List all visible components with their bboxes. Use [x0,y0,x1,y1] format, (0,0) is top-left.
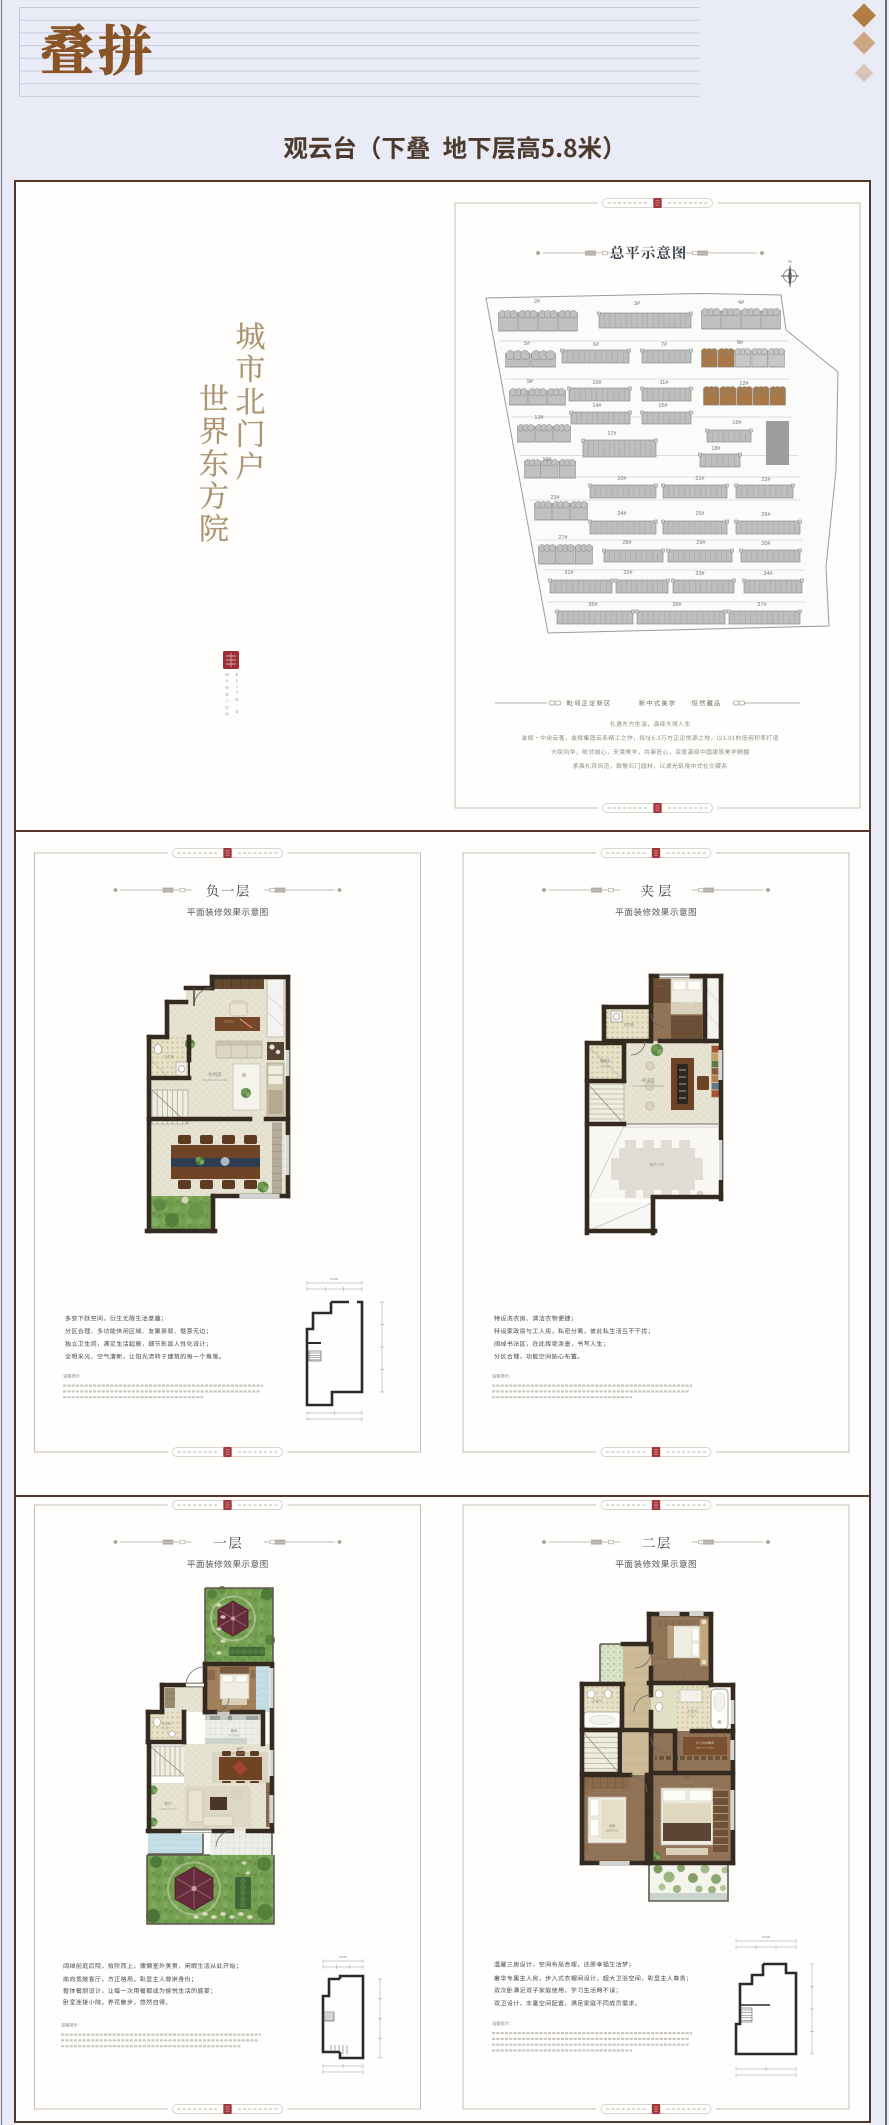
svg-text:15400: 15400 [339,1955,348,1959]
svg-text:31#: 31# [564,570,574,576]
svg-text:BEDROOM: BEDROOM [654,1662,666,1665]
svg-text:34#: 34# [763,571,773,577]
svg-text:25#: 25# [695,511,705,517]
svg-text:5#: 5# [524,341,531,347]
svg-text:E: E [236,697,239,702]
svg-text:7#: 7# [661,342,668,348]
svg-text:BEDROOM: BEDROOM [227,1705,242,1709]
svg-text:16#: 16# [732,420,742,426]
svg-text:S: S [226,692,229,697]
svg-text:TOILET: TOILET [688,1716,697,1718]
svg-text:3#: 3# [634,301,641,307]
svg-text:A: A [226,679,229,684]
svg-text:M: M [225,672,229,677]
svg-text:N: N [225,712,228,717]
svg-text:13#: 13# [534,415,544,421]
svg-text:27#: 27# [558,535,568,541]
svg-text:N: N [788,259,791,264]
svg-text:RESTAURANT: RESTAURANT [232,1753,249,1756]
svg-text:BEDROOM: BEDROOM [681,1782,693,1785]
svg-text:33#: 33# [695,571,705,577]
svg-text:19#: 19# [542,457,552,463]
svg-text:BEDROOM: BEDROOM [606,1831,618,1833]
svg-text:36#: 36# [672,602,682,608]
svg-text:35#: 35# [588,602,598,608]
svg-text:24#: 24# [617,511,627,517]
svg-text:17#: 17# [607,431,617,437]
svg-text:S: S [236,709,239,714]
svg-text:2#: 2# [534,299,541,305]
svg-text:KITCHEN: KITCHEN [229,1735,240,1738]
svg-text:23#: 23# [550,495,560,501]
svg-text:N: N [225,685,228,690]
svg-text:RECREATION AREA: RECREATION AREA [203,1078,228,1082]
svg-text:15400: 15400 [762,1935,771,1939]
svg-text:6#: 6# [593,342,600,348]
svg-text:9#: 9# [527,379,534,385]
svg-text:8#: 8# [737,340,744,346]
svg-text:32#: 32# [623,570,633,576]
svg-text:10#: 10# [592,380,602,386]
svg-text:26#: 26# [761,512,771,518]
svg-text:O: O [225,705,229,710]
svg-text:LIVING ROOM: LIVING ROOM [160,1808,177,1811]
svg-text:STORAGE: STORAGE [599,1065,611,1068]
svg-text:30#: 30# [761,541,771,547]
svg-text:29#: 29# [696,540,706,546]
svg-text:12#: 12# [739,381,749,387]
svg-text:22#: 22# [761,477,771,483]
svg-text:T: T [236,691,239,696]
svg-text:18#: 18# [711,446,721,452]
svg-text:TOILET: TOILET [162,1729,171,1731]
svg-text:20#: 20# [617,476,627,482]
svg-text:21#: 21# [695,476,705,482]
svg-text:I: I [226,698,227,703]
svg-text:I: I [236,684,237,689]
svg-text:11#: 11# [660,380,670,386]
svg-text:14#: 14# [592,403,602,409]
svg-text:37#: 37# [757,602,767,608]
svg-text:15400: 15400 [330,1277,339,1281]
svg-text:CALLIGRAPHY'S CABINET: CALLIGRAPHY'S CABINET [632,1084,665,1088]
svg-text:WALK-IN CLOSET: WALK-IN CLOSET [696,1747,715,1750]
svg-text:4#: 4# [738,300,745,306]
svg-text:E: E [236,672,239,677]
svg-text:15#: 15# [658,403,668,409]
svg-text:28#: 28# [622,540,632,546]
